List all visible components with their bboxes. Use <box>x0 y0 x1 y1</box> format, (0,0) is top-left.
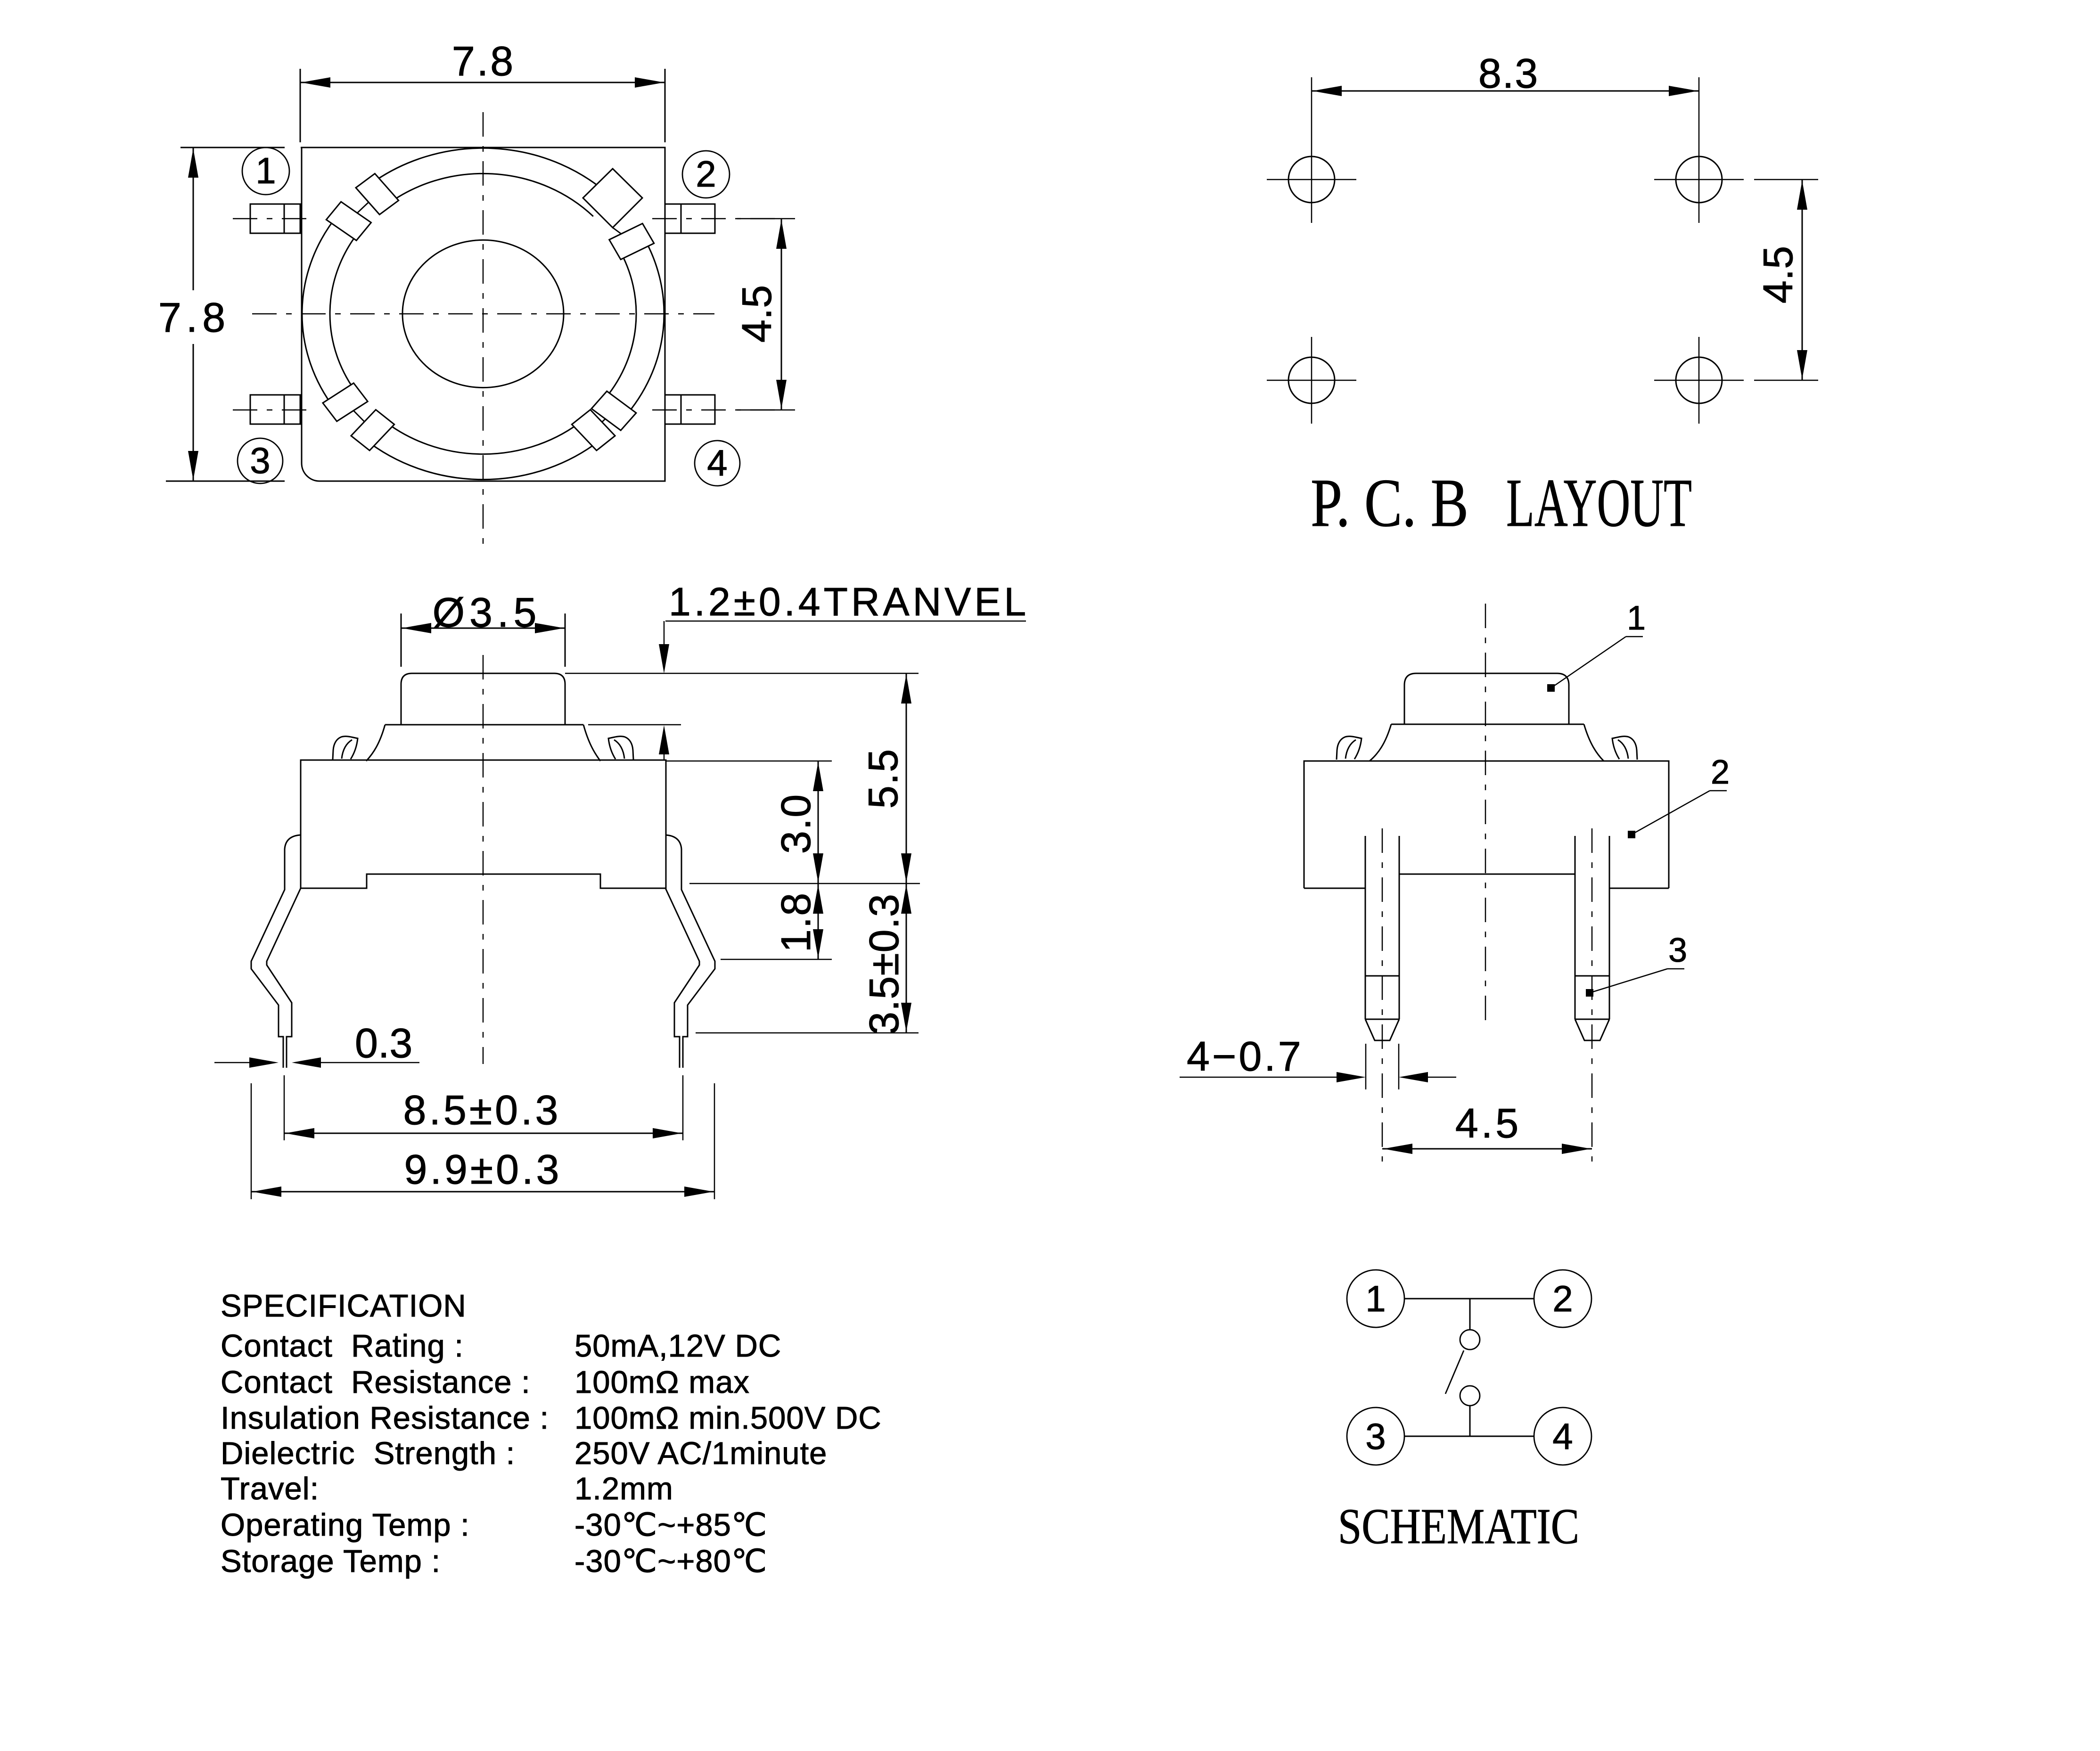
svg-text:4−0.7: 4−0.7 <box>1187 1033 1304 1080</box>
svg-text:Dielectric Strength :: Dielectric Strength : <box>221 1436 515 1471</box>
svg-text:Contact Resistance :: Contact Resistance : <box>221 1365 531 1400</box>
svg-text:Operating Temp :: Operating Temp : <box>221 1507 470 1543</box>
svg-text:-30℃~+80℃: -30℃~+80℃ <box>574 1544 767 1579</box>
svg-text:3: 3 <box>1668 932 1687 969</box>
svg-text:Travel:: Travel: <box>221 1471 319 1506</box>
svg-text:2: 2 <box>1711 753 1730 791</box>
svg-text:4.5: 4.5 <box>1755 246 1801 303</box>
svg-text:P. C. B: P. C. B <box>1311 465 1468 541</box>
svg-text:100mΩ max: 100mΩ max <box>574 1365 750 1400</box>
svg-text:50mA,12V DC: 50mA,12V DC <box>574 1328 781 1364</box>
svg-text:4: 4 <box>707 442 727 483</box>
svg-text:8.3: 8.3 <box>1478 50 1539 97</box>
svg-text:3: 3 <box>1365 1416 1386 1457</box>
svg-text:4: 4 <box>1552 1416 1573 1457</box>
svg-text:2: 2 <box>696 153 716 195</box>
svg-text:7.8: 7.8 <box>452 38 515 84</box>
svg-text:8.5±0.3: 8.5±0.3 <box>403 1087 561 1133</box>
svg-text:-30℃~+85℃: -30℃~+85℃ <box>574 1507 767 1543</box>
svg-text:Ø3.5: Ø3.5 <box>433 589 541 636</box>
svg-text:1.2mm: 1.2mm <box>574 1471 673 1506</box>
svg-text:3.5±0.3: 3.5±0.3 <box>861 893 907 1035</box>
svg-text:LAYOUT: LAYOUT <box>1506 465 1692 541</box>
svg-text:2: 2 <box>1552 1278 1573 1319</box>
svg-text:3: 3 <box>250 440 270 481</box>
svg-text:1.8: 1.8 <box>772 892 819 952</box>
svg-text:SPECIFICATION: SPECIFICATION <box>221 1288 467 1324</box>
svg-text:4.5: 4.5 <box>733 285 780 343</box>
svg-text:1: 1 <box>255 150 276 191</box>
svg-text:0.3: 0.3 <box>355 1020 412 1066</box>
svg-text:1: 1 <box>1365 1278 1386 1319</box>
svg-text:Storage Temp :: Storage Temp : <box>221 1544 441 1579</box>
svg-text:7.8: 7.8 <box>158 294 230 341</box>
svg-text:SCHEMATIC: SCHEMATIC <box>1338 1499 1579 1555</box>
svg-text:5.5: 5.5 <box>860 748 906 809</box>
svg-text:9.9±0.3: 9.9±0.3 <box>404 1146 562 1193</box>
svg-text:100mΩ min.500V DC: 100mΩ min.500V DC <box>574 1400 882 1436</box>
svg-text:1: 1 <box>1627 599 1646 637</box>
svg-text:Insulation Resistance :: Insulation Resistance : <box>221 1400 549 1436</box>
svg-text:4.5: 4.5 <box>1455 1100 1521 1146</box>
svg-text:1.2±0.4TRANVEL: 1.2±0.4TRANVEL <box>669 580 1029 624</box>
svg-text:250V AC/1minute: 250V AC/1minute <box>574 1436 827 1471</box>
svg-text:Contact Rating :: Contact Rating : <box>221 1328 464 1364</box>
svg-text:3.0: 3.0 <box>772 794 819 854</box>
